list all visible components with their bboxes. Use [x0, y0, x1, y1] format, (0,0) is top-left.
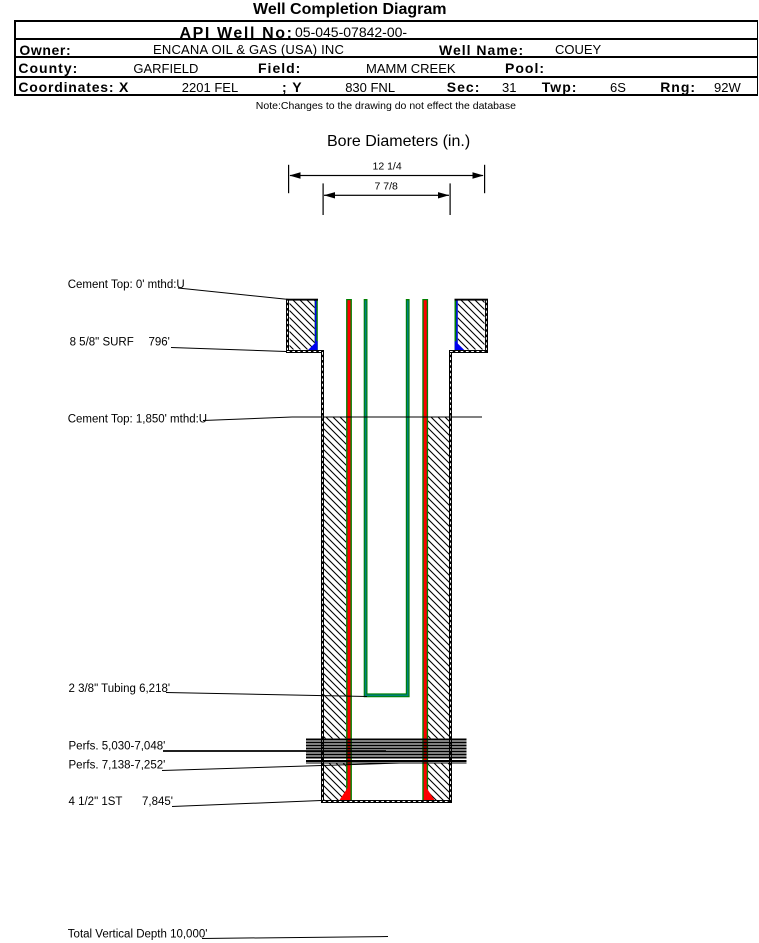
svg-text:12 1/4: 12 1/4: [373, 161, 402, 173]
svg-text:796': 796': [149, 336, 170, 348]
svg-text:7,845': 7,845': [142, 796, 173, 808]
svg-text:Perfs. 7,138-7,252': Perfs. 7,138-7,252': [69, 760, 166, 772]
svg-text:4 1/2" 1ST: 4 1/2" 1ST: [69, 796, 123, 808]
svg-text:Total Vertical Depth 10,000': Total Vertical Depth 10,000': [68, 928, 208, 940]
svg-text:7 7/8: 7 7/8: [375, 180, 399, 192]
svg-text:8 5/8" SURF: 8 5/8" SURF: [70, 336, 134, 348]
svg-text:Cement Top: 1,850' mthd:U: Cement Top: 1,850' mthd:U: [68, 413, 207, 425]
svg-text:Cement Top: 0' mthd:U: Cement Top: 0' mthd:U: [68, 279, 185, 291]
svg-text:2 3/8" Tubing 6,218': 2 3/8" Tubing 6,218': [69, 683, 171, 695]
svg-text:Perfs. 5,030-7,048': Perfs. 5,030-7,048': [69, 741, 166, 753]
